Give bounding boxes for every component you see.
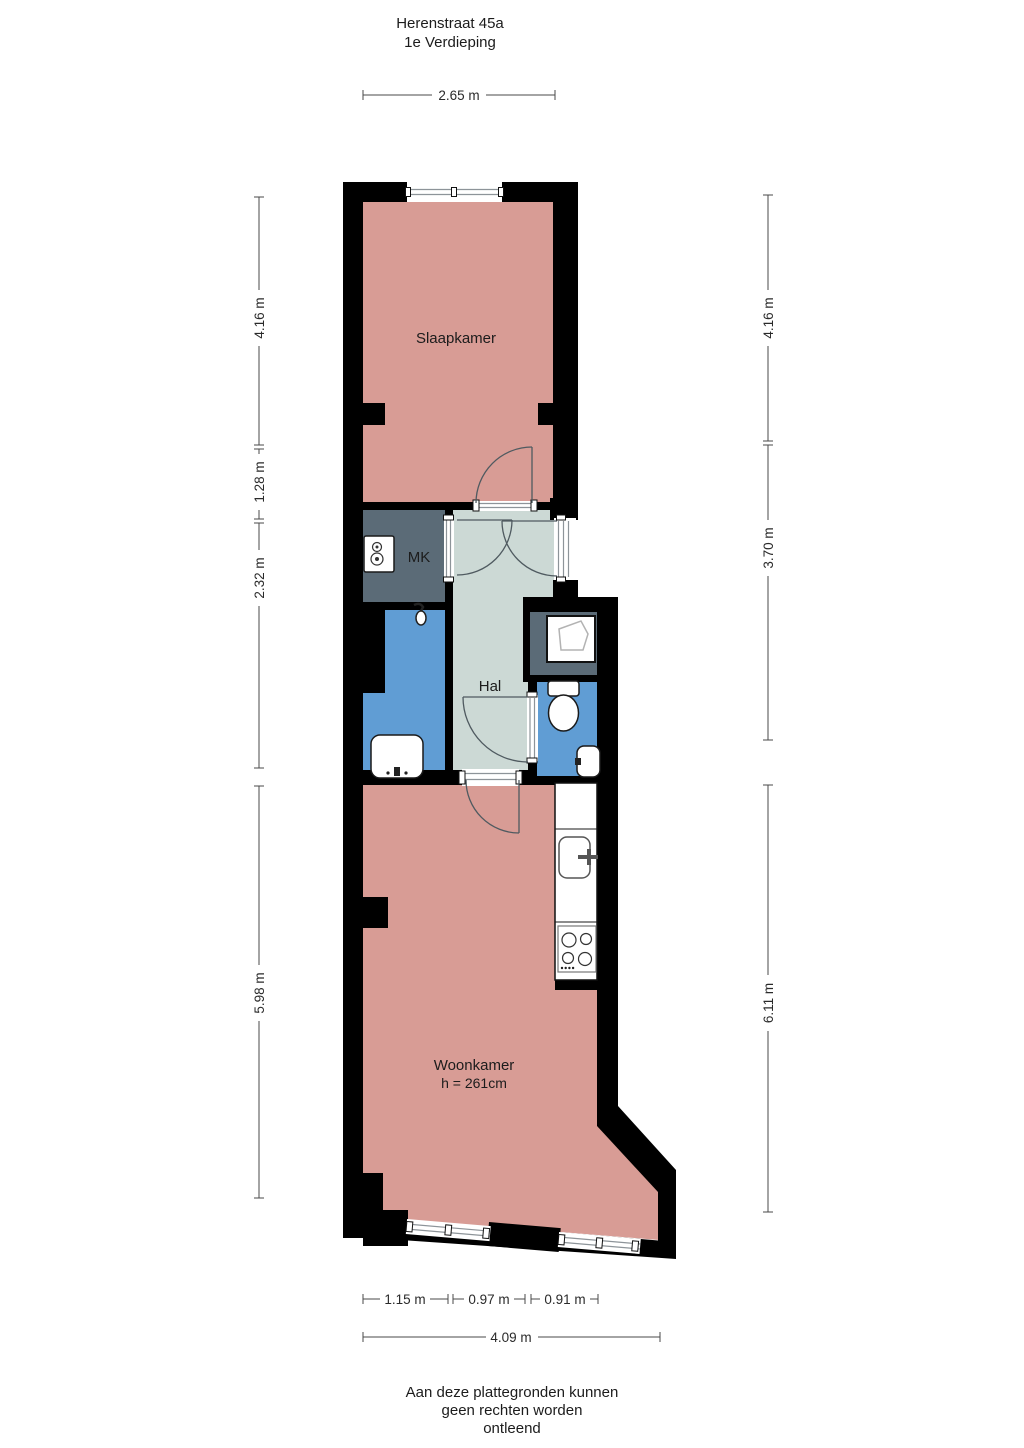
wall-chimney <box>363 610 385 693</box>
footer-line1: Aan deze plattegronden kunnen <box>406 1384 619 1401</box>
title-line1: Herenstraat 45a <box>396 15 504 32</box>
wall-stub <box>363 897 388 928</box>
hand-basin-icon <box>575 746 600 777</box>
floorplan-page: Herenstraat 45a 1e Verdieping <box>0 0 1024 1448</box>
dim-left-3: 5.98 m <box>252 972 267 1013</box>
dim-right-1: 3.70 m <box>761 527 776 568</box>
wall-stub <box>538 403 553 425</box>
toilet-icon <box>548 681 579 731</box>
wall-segment <box>597 597 618 1110</box>
wall-segment <box>523 612 530 675</box>
footer-line2: geen rechten worden <box>442 1402 583 1419</box>
dim-bottom-1: 0.97 m <box>468 1292 509 1307</box>
wall-segment <box>555 980 597 990</box>
wall-segment <box>363 602 453 610</box>
cooktop-icon <box>558 926 596 972</box>
dim-left-1: 1.28 m <box>252 461 267 502</box>
label-mk: MK <box>408 549 431 566</box>
label-slaapkamer: Slaapkamer <box>416 330 496 347</box>
label-woonkamer-height: h = 261cm <box>441 1075 507 1091</box>
footer-disclaimer: Aan deze plattegronden kunnen geen recht… <box>406 1384 619 1437</box>
dim-bottom-total: 4.09 m <box>363 1328 660 1346</box>
dim-top-label: 2.65 m <box>438 88 479 103</box>
title-line2: 1e Verdieping <box>404 34 496 51</box>
footer-line3: ontleend <box>483 1420 541 1437</box>
shower-tray-icon <box>547 616 595 662</box>
label-hal: Hal <box>479 678 502 695</box>
boiler-icon <box>364 536 394 572</box>
dim-bottom-0: 1.15 m <box>384 1292 425 1307</box>
floor-plan-canvas: Herenstraat 45a 1e Verdieping <box>0 0 1024 1448</box>
wall-segment <box>553 182 578 520</box>
wall-segment <box>553 580 578 598</box>
window-glyph-top <box>406 184 504 200</box>
wall-segment <box>343 182 363 1238</box>
dim-right-0: 4.16 m <box>761 297 776 338</box>
kitchen-counter <box>555 783 598 980</box>
dim-left-0: 4.16 m <box>252 297 267 338</box>
wall-segment <box>363 1173 383 1213</box>
washbasin-icon <box>371 735 423 778</box>
room-slaapkamer <box>363 202 553 502</box>
dim-bottom-segments: 1.15 m 0.97 m 0.91 m <box>363 1290 598 1308</box>
wall-stub <box>363 403 385 425</box>
wall-segment <box>363 502 477 510</box>
dim-right: 4.16 m 3.70 m 6.11 m <box>760 195 776 1212</box>
dim-bottom-2: 0.91 m <box>544 1292 585 1307</box>
dim-left-2: 2.32 m <box>252 557 267 598</box>
wall-segment <box>343 182 407 202</box>
dim-top: 2.65 m <box>363 86 555 104</box>
dim-left: 4.16 m 1.28 m 2.32 m 5.98 m <box>251 197 267 1198</box>
wall-segment <box>445 610 453 770</box>
dim-right-2: 6.11 m <box>761 983 776 1023</box>
label-woonkamer: Woonkamer <box>434 1057 515 1074</box>
dim-bottom-total-label: 4.09 m <box>490 1330 531 1345</box>
plan-title: Herenstraat 45a 1e Verdieping <box>396 15 504 51</box>
